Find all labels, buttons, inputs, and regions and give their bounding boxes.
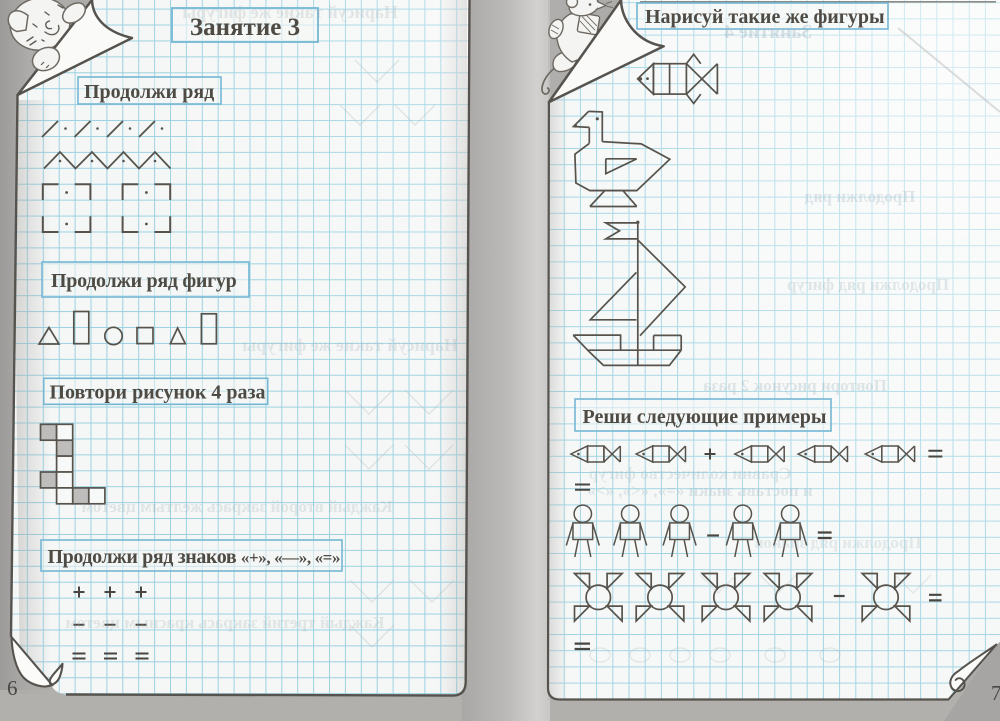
svg-text:Продолжи ряд: Продолжи ряд	[804, 187, 915, 206]
svg-text:Повтори рисунок 4 раза: Повтори рисунок 4 раза	[50, 382, 266, 404]
svg-text:Повтори рисунок 2 раза: Повтори рисунок 2 раза	[703, 376, 887, 395]
svg-text:Каждый второй закрась желтым ц: Каждый второй закрась желтым цветом	[81, 497, 393, 516]
svg-text:Реши следующие примеры: Реши следующие примеры	[583, 406, 827, 428]
svg-text:Продолжи ряд знаков «+», «—»,: Продолжи ряд знаков «+», «—», «=»	[48, 546, 341, 568]
svg-text:Продолжи ряд: Продолжи ряд	[84, 81, 214, 103]
svg-text:Каждый третий закрась красным: Каждый третий закрась красным цветом	[65, 613, 384, 632]
svg-text:Продолжи ряд фигур: Продолжи ряд фигур	[51, 270, 237, 292]
svg-text:7: 7	[991, 681, 1000, 705]
svg-text:Продолжи ряд знаков: Продолжи ряд знаков	[755, 533, 922, 552]
svg-text:Занятие 4: Занятие 4	[724, 21, 812, 43]
svg-text:Нарисуй такие же фигуры: Нарисуй такие же фигуры	[242, 335, 458, 355]
svg-text:и поставь знаки «=», «<», «>»: и поставь знаки «=», «<», «>»	[587, 481, 812, 500]
svg-text:Нарисуй такие же фигуры: Нарисуй такие же фигуры	[182, 2, 398, 22]
svg-text:Продолжи ряд фигур: Продолжи ряд фигур	[787, 275, 949, 294]
svg-text:6: 6	[7, 676, 18, 700]
